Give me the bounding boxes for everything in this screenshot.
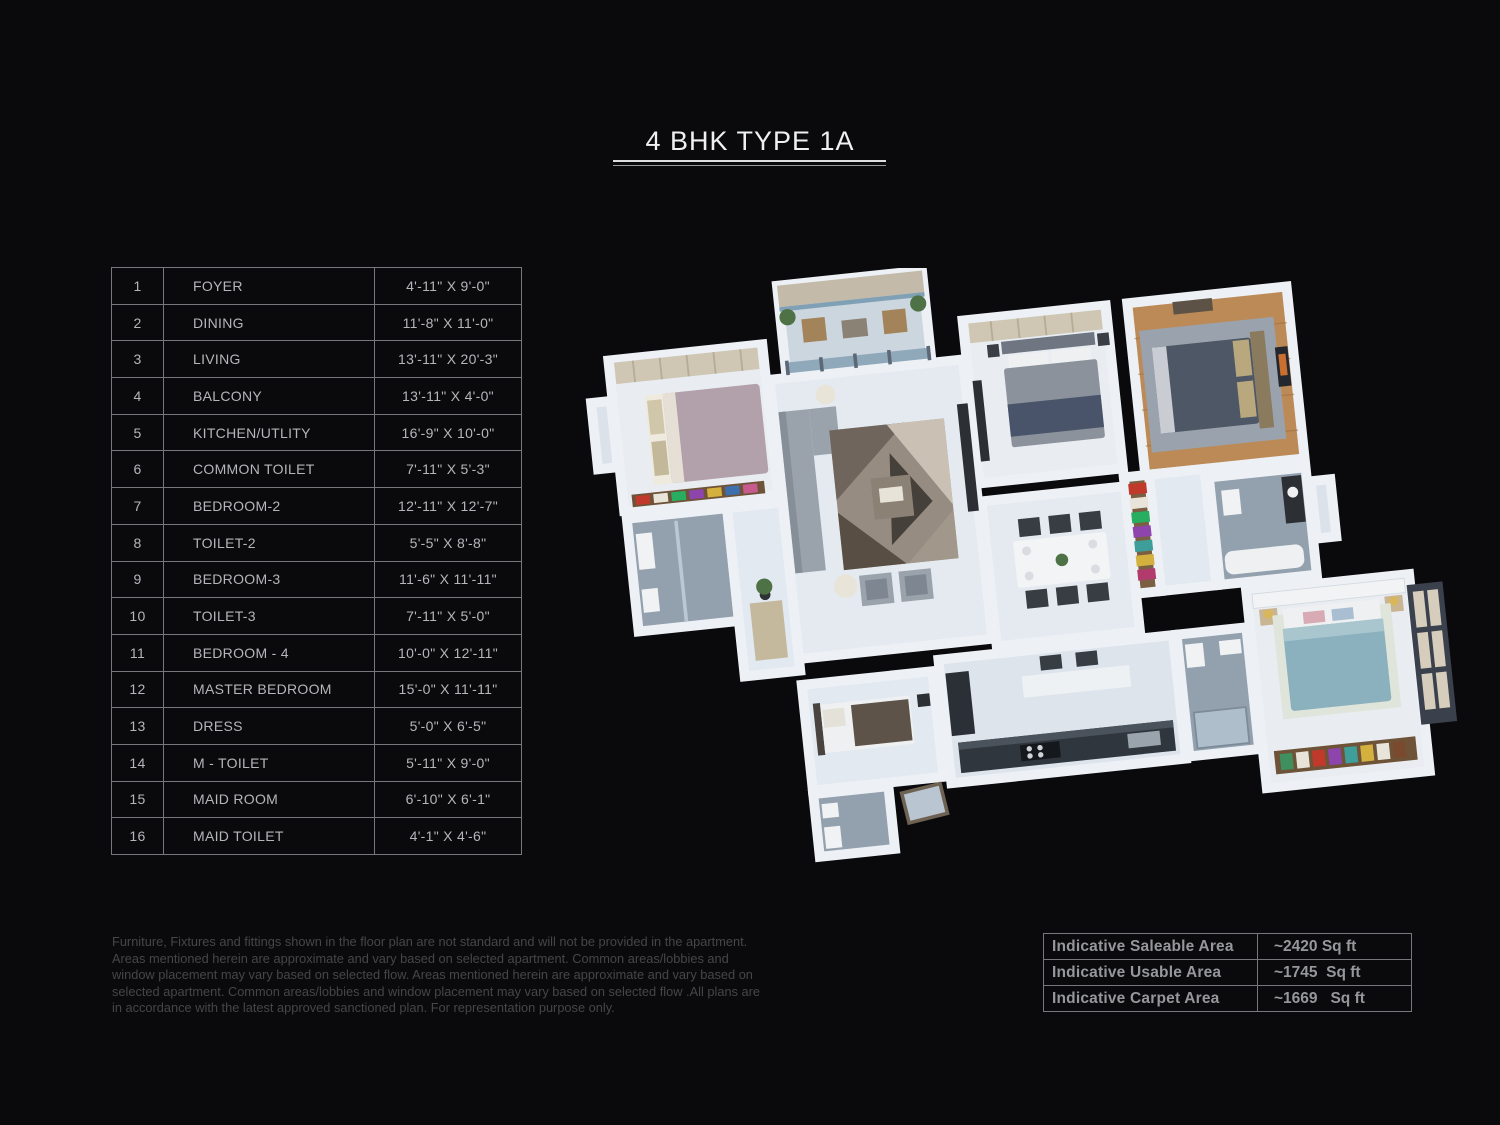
chair	[1056, 585, 1079, 605]
toilet	[1221, 489, 1242, 516]
table-row: 15MAID ROOM6'-10" X 6'-1"	[112, 781, 522, 818]
room-no: 6	[112, 451, 164, 488]
console-table	[750, 600, 788, 661]
room-dims: 7'-11" X 5'-0"	[375, 598, 522, 635]
room-name: LIVING	[164, 341, 375, 378]
room-name: DINING	[164, 304, 375, 341]
room-name: MAID TOILET	[164, 818, 375, 855]
room-no: 8	[112, 524, 164, 561]
table-row: 16MAID TOILET4'-1" X 4'-6"	[112, 818, 522, 855]
toilet	[641, 588, 660, 613]
room-no: 16	[112, 818, 164, 855]
room-dims: 12'-11" X 12'-7"	[375, 488, 522, 525]
table-row: 5KITCHEN/UTLITY16'-9" X 10'-0"	[112, 414, 522, 451]
room-name: TOILET-2	[164, 524, 375, 561]
area-row: Indicative Carpet Area ~1669 Sq ft	[1044, 986, 1412, 1012]
entry-door	[901, 783, 948, 823]
chair	[1025, 589, 1048, 609]
room-name: BALCONY	[164, 378, 375, 415]
room-name: DRESS	[164, 708, 375, 745]
chair	[1018, 517, 1041, 537]
area-row: Indicative Saleable Area ~2420 Sq ft	[1044, 934, 1412, 960]
table-row: 8TOILET-25'-5" X 8'-8"	[112, 524, 522, 561]
room-dims: 6'-10" X 6'-1"	[375, 781, 522, 818]
area-value: ~2420 Sq ft	[1258, 934, 1412, 960]
room-no: 9	[112, 561, 164, 598]
room-name: COMMON TOILET	[164, 451, 375, 488]
table-row: 1FOYER4'-11" X 9'-0"	[112, 268, 522, 305]
sink	[1219, 639, 1242, 656]
disclaimer-text: Furniture, Fixtures and fittings shown i…	[112, 934, 764, 1017]
toilet	[1185, 643, 1205, 668]
room-name: MASTER BEDROOM	[164, 671, 375, 708]
room-no: 5	[112, 414, 164, 451]
room-no: 7	[112, 488, 164, 525]
room-dims: 10'-0" X 12'-11"	[375, 634, 522, 671]
room-no: 11	[112, 634, 164, 671]
room-dims: 13'-11" X 4'-0"	[375, 378, 522, 415]
chair	[1079, 511, 1102, 531]
shower	[1194, 707, 1250, 748]
pillow	[822, 708, 845, 728]
bar-stool	[1075, 650, 1098, 667]
table-row: 14M - TOILET5'-11" X 9'-0"	[112, 744, 522, 781]
toilet	[824, 826, 842, 849]
room-no: 3	[112, 341, 164, 378]
chair	[1048, 514, 1071, 534]
room-dims: 7'-11" X 5'-3"	[375, 451, 522, 488]
table-row: 6COMMON TOILET7'-11" X 5'-3"	[112, 451, 522, 488]
side-table	[917, 693, 931, 707]
room-dims: 5'-0" X 6'-5"	[375, 708, 522, 745]
table-row: 11BEDROOM - 410'-0" X 12'-11"	[112, 634, 522, 671]
area-row: Indicative Usable Area ~1745 Sq ft	[1044, 960, 1412, 986]
page-title: 4 BHK TYPE 1A	[450, 126, 1050, 157]
room-name: BEDROOM-3	[164, 561, 375, 598]
floor-plan-render	[538, 268, 1473, 888]
room-no: 14	[112, 744, 164, 781]
room-dims: 15'-0" X 11'-11"	[375, 671, 522, 708]
table-row: 4BALCONY13'-11" X 4'-0"	[112, 378, 522, 415]
room-no: 13	[112, 708, 164, 745]
room-name: MAID ROOM	[164, 781, 375, 818]
sink	[822, 802, 840, 818]
room-dims: 5'-11" X 9'-0"	[375, 744, 522, 781]
table-row: 2DINING11'-8" X 11'-0"	[112, 304, 522, 341]
room-name: M - TOILET	[164, 744, 375, 781]
room-dimension-table: 1FOYER4'-11" X 9'-0" 2DINING11'-8" X 11'…	[111, 267, 522, 855]
title-underline	[613, 160, 886, 166]
bar-stool	[1039, 654, 1062, 671]
area-value: ~1745 Sq ft	[1258, 960, 1412, 986]
area-label: Indicative Usable Area	[1044, 960, 1258, 986]
room-no: 4	[112, 378, 164, 415]
area-label: Indicative Carpet Area	[1044, 986, 1258, 1012]
table-row: 13DRESS5'-0" X 6'-5"	[112, 708, 522, 745]
table-row: 7BEDROOM-212'-11" X 12'-7"	[112, 488, 522, 525]
room-name: FOYER	[164, 268, 375, 305]
room-no: 15	[112, 781, 164, 818]
room-no: 2	[112, 304, 164, 341]
room-dims: 4'-11" X 9'-0"	[375, 268, 522, 305]
indicative-area-table: Indicative Saleable Area ~2420 Sq ft Ind…	[1043, 933, 1412, 1012]
dining-area	[1011, 510, 1113, 609]
chair	[1086, 582, 1109, 602]
room-dims: 4'-1" X 4'-6"	[375, 818, 522, 855]
room-dims: 5'-5" X 8'-8"	[375, 524, 522, 561]
room-no: 12	[112, 671, 164, 708]
table-row: 9BEDROOM-311'-6" X 11'-11"	[112, 561, 522, 598]
room-dims: 13'-11" X 20'-3"	[375, 341, 522, 378]
room-no: 1	[112, 268, 164, 305]
floor-plan-poster: 4 BHK TYPE 1A 1FOYER4'-11" X 9'-0" 2DINI…	[0, 0, 1500, 1125]
room-name: TOILET-3	[164, 598, 375, 635]
room-dims: 11'-6" X 11'-11"	[375, 561, 522, 598]
room-no: 10	[112, 598, 164, 635]
room-dims: 16'-9" X 10'-0"	[375, 414, 522, 451]
room-name: KITCHEN/UTLITY	[164, 414, 375, 451]
room-dims: 11'-8" X 11'-0"	[375, 304, 522, 341]
area-value: ~1669 Sq ft	[1258, 986, 1412, 1012]
table-row: 10TOILET-37'-11" X 5'-0"	[112, 598, 522, 635]
area-label: Indicative Saleable Area	[1044, 934, 1258, 960]
room-name: BEDROOM - 4	[164, 634, 375, 671]
table-row: 12MASTER BEDROOM15'-0" X 11'-11"	[112, 671, 522, 708]
room-name: BEDROOM-2	[164, 488, 375, 525]
table-row: 3LIVING13'-11" X 20'-3"	[112, 341, 522, 378]
